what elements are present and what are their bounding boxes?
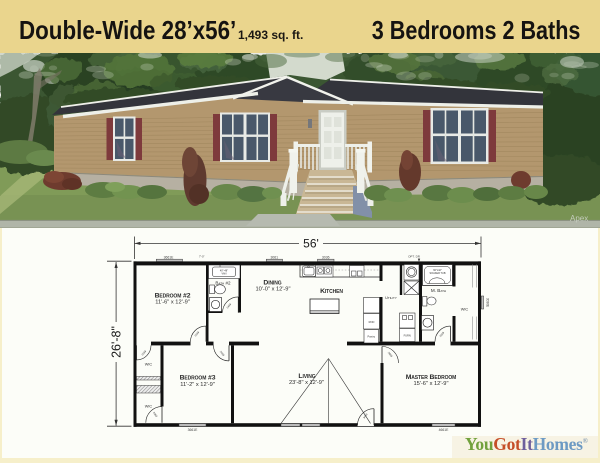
- svg-text:11'-2" x 12'-9": 11'-2" x 12'-9": [180, 382, 215, 388]
- svg-text:15'-6" x 12'-9": 15'-6" x 12'-9": [414, 381, 449, 387]
- svg-text:Apex: Apex: [570, 214, 588, 223]
- svg-text:23'-8" x 12'-9": 23'-8" x 12'-9": [289, 380, 324, 386]
- svg-text:Dining: Dining: [263, 280, 281, 287]
- svg-text:M. Bath: M. Bath: [431, 288, 446, 293]
- svg-text:VAN: VAN: [222, 272, 227, 275]
- svg-text:2668: 2668: [438, 330, 445, 337]
- svg-text:3036E: 3036E: [486, 298, 490, 307]
- svg-text:3061: 3061: [271, 255, 279, 259]
- svg-text:Bedroom #3: Bedroom #3: [180, 375, 216, 382]
- svg-text:4661E: 4661E: [439, 428, 450, 432]
- svg-text:Pantry: Pantry: [368, 335, 376, 339]
- svg-text:SOAKER TUB: SOAKER TUB: [429, 272, 445, 275]
- svg-text:OPT. DR: OPT. DR: [408, 254, 421, 258]
- svg-text:Master Bedroom: Master Bedroom: [406, 374, 457, 381]
- svg-text:7'-0": 7'-0": [199, 254, 205, 258]
- svg-text:Utility: Utility: [385, 296, 397, 300]
- svg-text:2468: 2468: [225, 302, 232, 309]
- svg-text:26'-8": 26'-8": [109, 326, 123, 358]
- svg-text:11'-6" x 12'-9": 11'-6" x 12'-9": [155, 300, 190, 306]
- svg-text:2068: 2068: [152, 411, 159, 418]
- svg-text:3036: 3036: [322, 255, 330, 259]
- svg-text:3661E: 3661E: [164, 255, 175, 259]
- svg-text:10'-0" x 12'-9": 10'-0" x 12'-9": [256, 287, 291, 293]
- svg-text:2668: 2668: [219, 350, 226, 357]
- svg-text:WIC: WIC: [145, 405, 153, 409]
- svg-text:WIC: WIC: [461, 308, 469, 312]
- svg-text:FURN: FURN: [404, 334, 411, 338]
- svg-text:2068: 2068: [140, 349, 147, 356]
- svg-text:3661E: 3661E: [188, 428, 199, 432]
- svg-text:2868: 2868: [387, 351, 394, 358]
- svg-text:Bedroom #2: Bedroom #2: [155, 292, 191, 299]
- svg-text:56': 56': [303, 237, 319, 251]
- svg-text:Living: Living: [298, 373, 315, 380]
- svg-text:ROD: ROD: [369, 320, 375, 324]
- svg-text:Kitchen: Kitchen: [320, 288, 343, 295]
- svg-text:WIC: WIC: [145, 363, 153, 367]
